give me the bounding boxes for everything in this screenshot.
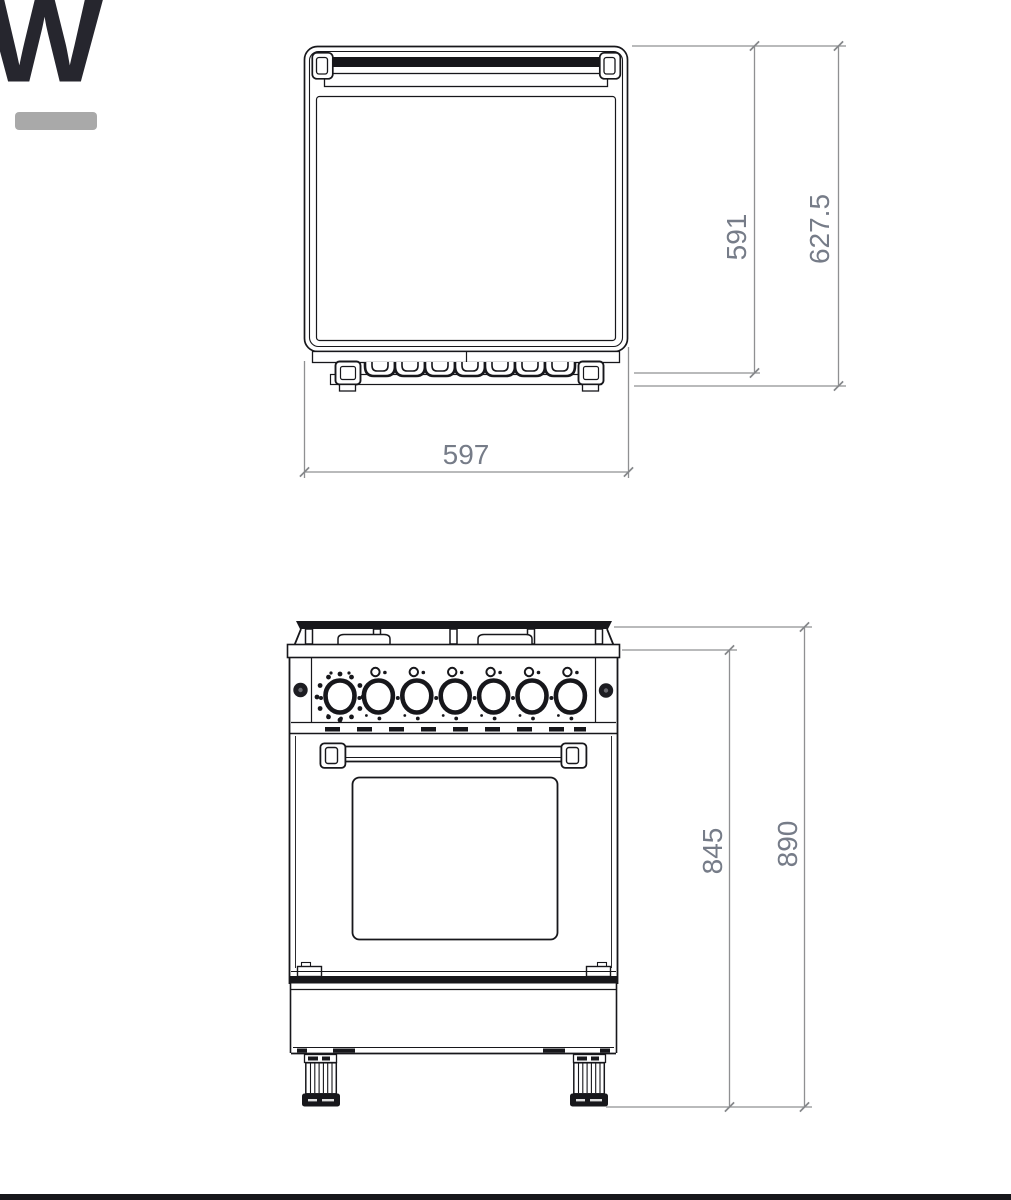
handle-bracket-left — [312, 53, 333, 79]
control-knob — [357, 681, 393, 721]
knob-top — [515, 362, 545, 376]
technical-drawing-canvas: 597 591 627.5 — [0, 0, 1011, 1200]
door-handle-cap-left — [320, 743, 345, 768]
knob-top — [365, 362, 395, 376]
door-hinges — [298, 963, 611, 977]
door-window — [353, 778, 558, 940]
top-view-body — [305, 47, 628, 352]
dim-label-width: 597 — [443, 439, 490, 470]
storage-drawer — [291, 984, 617, 1054]
foot-left — [302, 1063, 340, 1107]
door-bottom-trim — [290, 976, 617, 984]
knob-top — [425, 362, 455, 376]
burner-icon — [563, 668, 579, 676]
burner-icon — [525, 668, 541, 676]
foot-right — [570, 1063, 608, 1107]
page-bottom-divider — [0, 1194, 1011, 1200]
hob-burners — [338, 635, 532, 646]
burner-icon — [486, 668, 502, 676]
end-cap-left — [336, 362, 361, 385]
cooktop-edge — [288, 645, 620, 658]
door-handle-bar — [334, 747, 574, 762]
spec-sheet-page: 597 591 627.5 — [0, 0, 1011, 1200]
brand-logo-underline — [15, 112, 97, 130]
dim-label-depth-body: 591 — [721, 214, 752, 261]
brand-logo-letter: W — [0, 0, 97, 109]
oven-door — [290, 736, 617, 984]
knob-top — [395, 362, 425, 376]
end-cap-right — [579, 362, 604, 385]
control-knob — [319, 681, 355, 721]
burner-icon — [448, 668, 464, 676]
control-knob — [511, 681, 547, 721]
burner-icon — [410, 668, 426, 676]
dim-label-depth-total: 627.5 — [804, 194, 835, 264]
cooker-front-view — [288, 621, 620, 1107]
dim-label-height-body: 845 — [697, 828, 728, 875]
control-knob — [434, 681, 470, 721]
handle-bar — [317, 57, 615, 67]
knob-top — [455, 362, 485, 376]
dim-label-height-total: 890 — [772, 821, 803, 868]
front-view-dimensions: 845 890 — [606, 622, 812, 1111]
control-knob — [396, 681, 432, 721]
knob-top — [545, 362, 575, 376]
control-knob — [549, 681, 585, 721]
cooker-top-view — [305, 47, 628, 392]
control-panel — [290, 658, 618, 734]
adjustable-feet — [302, 1055, 608, 1107]
top-view-knob-row — [313, 352, 620, 392]
handle-bracket-right — [600, 53, 621, 79]
burner-icon — [371, 668, 387, 676]
door-handle-cap-right — [561, 743, 586, 768]
control-knob — [473, 681, 509, 721]
knob-top — [485, 362, 515, 376]
